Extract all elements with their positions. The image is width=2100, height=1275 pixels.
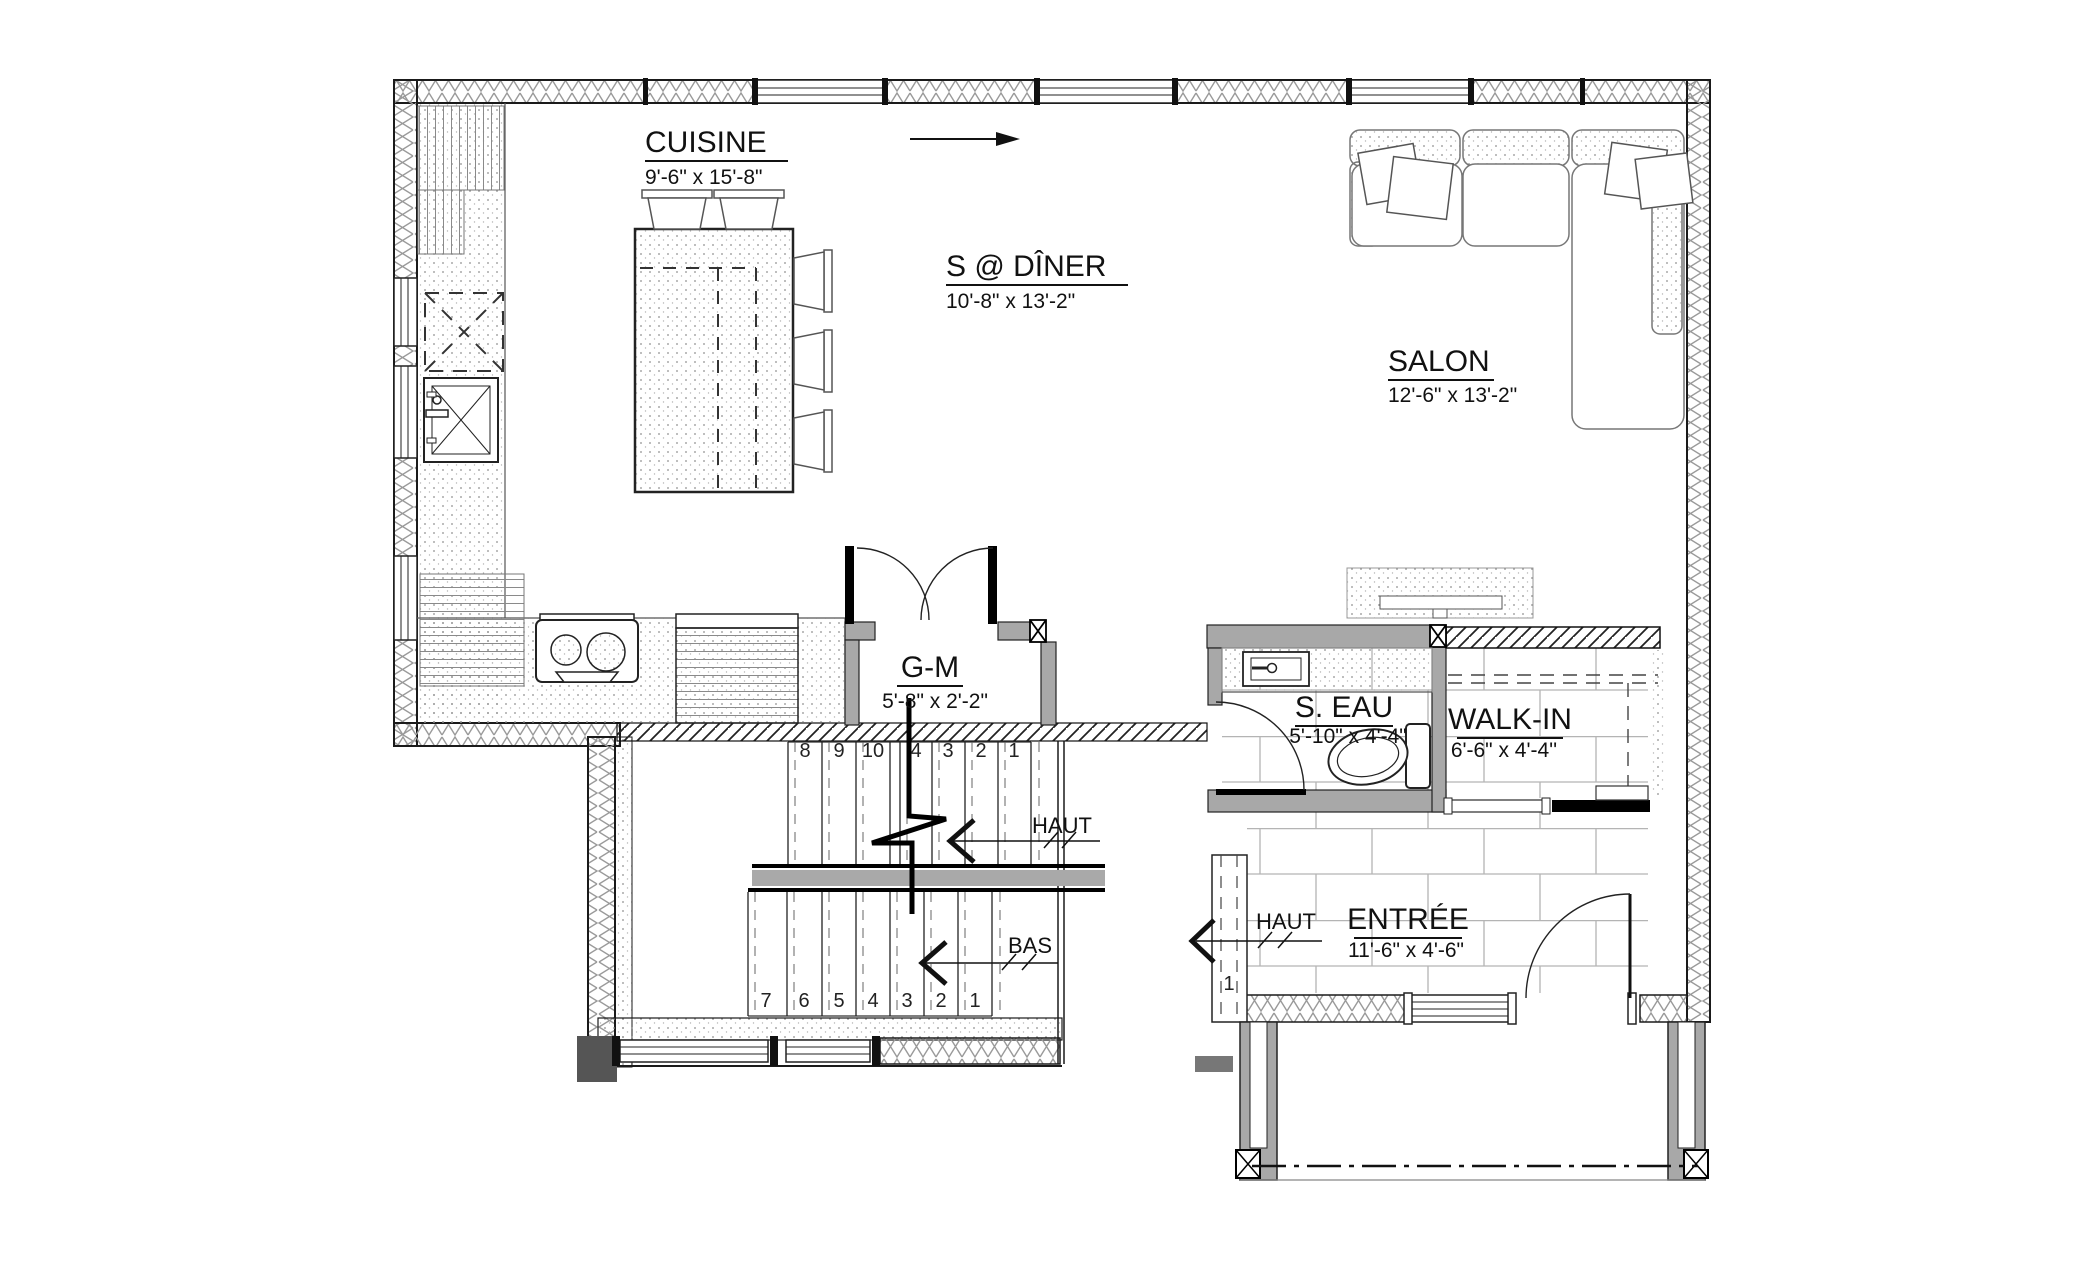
room-dims-salle-a-diner: 10'-8" x 13'-2" [946, 290, 1075, 313]
room-label-salle-a-diner: S @ DÎNER [946, 250, 1106, 283]
right-exterior-wall [1687, 80, 1710, 1022]
entree-bottom-wall-right [1640, 995, 1687, 1022]
upper-flight-numbers: 8 9 10 4 3 2 1 [799, 740, 1019, 762]
stair-number: 8 [799, 740, 810, 762]
gm-right-wall [1041, 642, 1056, 725]
lower-flight-numbers: 7 6 5 4 3 2 1 [760, 990, 980, 1012]
seau-top-wall [1207, 625, 1445, 648]
stair-number: 6 [798, 990, 809, 1012]
direction-arrow [910, 132, 1020, 146]
floor-plan-canvas: 8 9 10 4 3 2 1 7 6 5 4 3 2 1 [0, 0, 2100, 1275]
room-dims-entree: 11'-6" x 4'-6" [1348, 939, 1464, 962]
top-window-3 [1350, 80, 1470, 103]
room-dims-cuisine: 9'-6" x 15'-8" [645, 166, 762, 189]
room-dims-seau: 5'-10" x 4'-4" [1289, 725, 1406, 748]
gm-right-stub-wall [998, 622, 1030, 640]
cabinet-left [418, 190, 464, 254]
stair-bottom-wall-insulation [880, 1038, 1060, 1064]
left-window-2 [394, 366, 417, 458]
left-window-3 [394, 556, 417, 640]
tv-cabinet [1347, 568, 1533, 618]
walkin-bench [1596, 786, 1648, 800]
stair-number: 1 [969, 990, 980, 1012]
corner-cabinet-bottom [420, 574, 524, 686]
gm-left-stub-wall [845, 622, 875, 640]
walkin-jamb-2 [1542, 798, 1550, 814]
kitchen-island [635, 229, 793, 492]
entry-jamb-2 [1508, 993, 1516, 1024]
gm-door-leaf-right [988, 546, 997, 624]
stair-number: 4 [867, 990, 878, 1012]
stair-number: 3 [901, 990, 912, 1012]
foundation-stub [1195, 1056, 1233, 1072]
entree-left-wall [1212, 855, 1247, 1022]
basement-window-1 [620, 1040, 768, 1062]
corner-cabinet-top [418, 106, 504, 190]
direction-arrow-head [996, 132, 1020, 146]
room-dims-salon: 12'-6" x 13'-2" [1388, 384, 1517, 407]
foundation-post [577, 1036, 617, 1082]
walkin-door-sill [1446, 800, 1550, 812]
room-label-cuisine: CUISINE [645, 126, 767, 159]
stair-number: 7 [760, 990, 771, 1012]
kitchen [417, 103, 845, 723]
walkin-top-wall-hatch [1446, 627, 1660, 648]
gm-door-swing-left [857, 548, 929, 620]
gm-double-doors [845, 546, 997, 624]
walkin-bottom-wall-solid [1552, 800, 1650, 812]
room-label-entree: ENTRÉE [1347, 903, 1469, 936]
stair-number: 3 [942, 740, 953, 762]
stair-number: 4 [910, 740, 921, 762]
walkin-jamb-1 [1444, 798, 1452, 814]
stair-number: 5 [833, 990, 844, 1012]
porch-left-column [1236, 1022, 1277, 1180]
room-dims-gm: 5'-8" x 2'-2" [882, 690, 988, 713]
stair-number: 2 [975, 740, 986, 762]
stair-number: 9 [833, 740, 844, 762]
fridge-icon [676, 614, 798, 723]
stair-number: 2 [935, 990, 946, 1012]
kitchen-sink-icon [424, 378, 498, 462]
entree-bottom-wall-left [1246, 995, 1410, 1022]
gm-door-swing-right [921, 548, 993, 620]
entry-jamb-1 [1404, 993, 1412, 1024]
left-window-1 [394, 278, 417, 346]
stairwell-north-wall-hatch [617, 723, 1207, 741]
room-label-gm: G-M [901, 651, 959, 684]
stair-bottom-wall-concrete [598, 1018, 1062, 1040]
room-label-walkin: WALK-IN [1448, 703, 1572, 736]
haut-label-entree: HAUT [1256, 909, 1316, 934]
entry-step-number: 1 [1223, 973, 1234, 995]
seau-left-wall [1208, 648, 1222, 705]
bas-label-stairwell: BAS [1008, 933, 1052, 958]
stair-east-wall-lines [1058, 741, 1064, 1064]
stairwell: 8 9 10 4 3 2 1 7 6 5 4 3 2 1 [748, 698, 1105, 1016]
gm-door-leaf-left [845, 546, 854, 624]
seau-walkin-divider-wall [1432, 646, 1446, 812]
porch-right-column [1668, 1022, 1708, 1180]
top-window-2 [1038, 80, 1174, 103]
gm-left-wall [845, 640, 859, 725]
room-dims-walkin: 6'-6" x 4'-4'' [1451, 739, 1557, 762]
top-window-1 [756, 80, 884, 103]
wall-stipple-strip [1650, 650, 1666, 796]
floor-plan-page: 8 9 10 4 3 2 1 7 6 5 4 3 2 1 [0, 0, 2100, 1275]
stove-icon [536, 614, 638, 682]
stair-number: 1 [1008, 740, 1019, 762]
kitchen-bottom-wall [394, 723, 620, 746]
haut-label-stairwell: HAUT [1032, 813, 1092, 838]
stair-landing [752, 870, 1105, 886]
room-label-seau: S. EAU [1295, 691, 1393, 724]
basement-window-2 [786, 1040, 870, 1062]
room-label-salon: SALON [1388, 345, 1490, 378]
vanity-sink-icon [1243, 652, 1309, 686]
stair-number: 10 [862, 740, 884, 762]
